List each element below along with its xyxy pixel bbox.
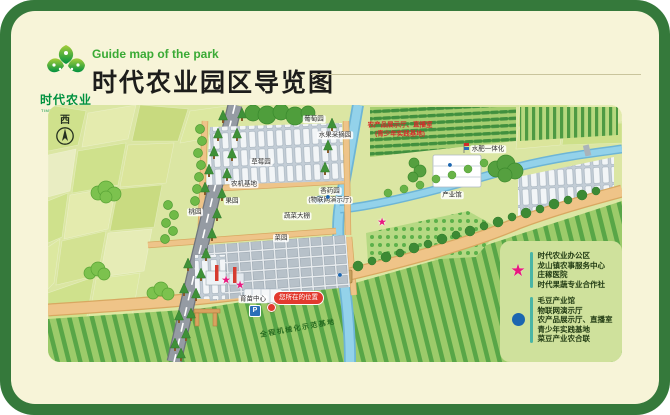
map-label: 葡萄园 [303, 115, 326, 123]
legend-item: 青少年实践基地 [538, 325, 613, 335]
map-label: 草莓园 [250, 158, 273, 166]
map-marker-icon: ★ [235, 281, 245, 292]
map-label: 菜园 [273, 234, 289, 242]
legend-item: 物联网演示厅 [538, 306, 613, 316]
map-label: 果园 [224, 197, 240, 205]
compass-arrow-icon [55, 126, 75, 146]
legend-item: 菜豆产业农合联 [538, 334, 613, 344]
legend-item: 庄稼医院 [538, 270, 606, 280]
legend-item: 毛豆产业馆 [538, 296, 613, 306]
header-divider [311, 74, 641, 75]
map-label: 育苗中心 [239, 295, 268, 303]
map-label: 农机基地 [230, 180, 259, 188]
map-marker-icon: ● [325, 193, 330, 202]
park-map: 西 草莓园葡萄园水果采摘园农机基地蔬菜大棚菜园果园桃园育苗中心香药园(物联网演示… [48, 105, 622, 362]
compass-direction-label: 西 [54, 111, 76, 126]
legend-star-items: 时代农业办公区龙山镇农事服务中心庄稼医院时代果蔬专业合作社 [538, 251, 606, 289]
legend-divider [530, 297, 533, 343]
legend-dot-group: 毛豆产业馆物联网演示厅农产品展示厅、直播室青少年实践基地菜豆产业农合联 [508, 296, 620, 344]
map-marker-icon: ● [337, 271, 342, 280]
parking-icon: P [249, 305, 261, 317]
brand-logo: 时代农业 TIMES AGRICULTURE [35, 43, 97, 113]
star-icon: ★ [510, 262, 525, 279]
legend-item: 农产品展示厅、直播室 [538, 315, 613, 325]
poster-card: 时代农业 TIMES AGRICULTURE Guide map of the … [11, 11, 659, 404]
map-label: 农产品展示厅、直播室 [366, 121, 434, 129]
you-are-here-badge: 您所在的位置 [273, 291, 324, 305]
legend-star-group: ★ 时代农业办公区龙山镇农事服务中心庄稼医院时代果蔬专业合作社 [508, 251, 620, 289]
leaf-emblem-icon [38, 43, 94, 85]
compass: 西 [54, 111, 76, 151]
page-title: 时代农业园区导览图 [92, 63, 335, 99]
map-marker-icon: ★ [221, 276, 231, 287]
legend-divider [530, 252, 533, 288]
map-marker-icon: ★ [377, 218, 387, 229]
dot-icon [512, 313, 525, 326]
map-label: (青少年实践基地) [374, 130, 427, 138]
poster-frame: 时代农业 TIMES AGRICULTURE Guide map of the … [0, 0, 670, 415]
legend-item: 时代农业办公区 [538, 251, 606, 261]
legend-item: 时代果蔬专业合作社 [538, 280, 606, 290]
legend-dot-items: 毛豆产业馆物联网演示厅农产品展示厅、直播室青少年实践基地菜豆产业农合联 [538, 296, 613, 344]
you-are-here-pin-icon [267, 303, 276, 312]
map-label: 水肥一体化 [470, 145, 506, 153]
map-label: 蔬菜大棚 [283, 212, 312, 220]
map-subtitle: Guide map of the park [92, 47, 335, 61]
map-label: 产业馆 [441, 191, 464, 199]
map-legend: ★ 时代农业办公区龙山镇农事服务中心庄稼医院时代果蔬专业合作社 毛豆产业馆物联网… [508, 251, 620, 351]
map-label: 桃园 [187, 208, 203, 216]
legend-item: 龙山镇农事服务中心 [538, 261, 606, 271]
map-marker-icon: ● [447, 161, 452, 170]
map-label: 水果采摘园 [317, 131, 353, 139]
